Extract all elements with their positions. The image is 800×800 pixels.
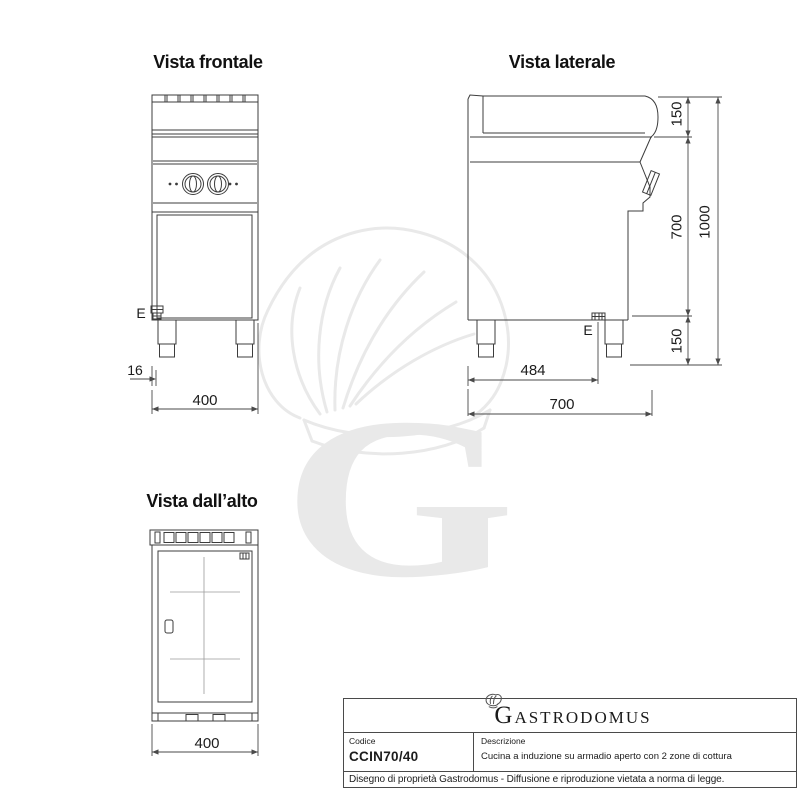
front-legs <box>158 320 254 357</box>
top-cooktop-glass <box>158 551 252 702</box>
title-block: GASTRODOMUS Codice CCIN70/40 Descrizione… <box>343 698 797 788</box>
side-dim-e-offset: 484 <box>520 362 545 379</box>
description-value: Cucina a induzione su armadio aperto con… <box>481 751 791 762</box>
top-zone-centerlines <box>170 557 240 694</box>
code-label: Codice <box>349 736 468 746</box>
description-label: Descrizione <box>481 736 791 746</box>
side-dim-backsplash-height: 150 <box>669 101 686 126</box>
front-vent-grill <box>152 95 258 102</box>
front-view-drawing <box>130 95 258 414</box>
side-dim-leg-height: 150 <box>669 328 686 353</box>
top-control-strip <box>152 713 258 721</box>
watermark-letter: G <box>283 370 516 625</box>
side-legs <box>477 320 623 357</box>
front-view-title: Vista frontale <box>153 52 263 73</box>
top-view-drawing <box>150 530 258 756</box>
brand-logo: GASTRODOMUS <box>344 699 796 733</box>
description-cell: Descrizione Cucina a induzione su armadi… <box>474 733 796 771</box>
top-corner-mark <box>240 553 249 559</box>
code-cell: Codice CCIN70/40 <box>344 733 474 771</box>
side-view-title: Vista laterale <box>509 52 616 73</box>
watermark-chef-hat-icon: G <box>259 228 515 625</box>
front-e-label: E <box>136 305 145 321</box>
side-e-connector <box>592 313 605 320</box>
brand-name: ASTRODOMUS <box>514 708 651 727</box>
top-view-title: Vista dall’alto <box>146 491 257 512</box>
front-dim-e-offset: 16 <box>127 362 143 378</box>
top-side-handle <box>165 620 173 633</box>
side-dim-depth: 700 <box>549 396 574 413</box>
front-dim-width: 400 <box>192 392 217 409</box>
top-vent-grill <box>150 530 258 545</box>
side-dim-total-height: 1000 <box>697 205 714 238</box>
top-dim-width: 400 <box>194 735 219 752</box>
drawing-sheet: G <box>0 0 800 800</box>
copyright-note: Disegno di proprietà Gastrodomus - Diffu… <box>344 772 796 789</box>
chef-hat-icon <box>484 692 504 709</box>
side-dim-body-height: 700 <box>669 214 686 239</box>
front-control-knobs <box>169 174 238 195</box>
side-e-label: E <box>583 322 592 338</box>
front-open-cabinet <box>157 215 252 318</box>
code-value: CCIN70/40 <box>349 749 468 764</box>
